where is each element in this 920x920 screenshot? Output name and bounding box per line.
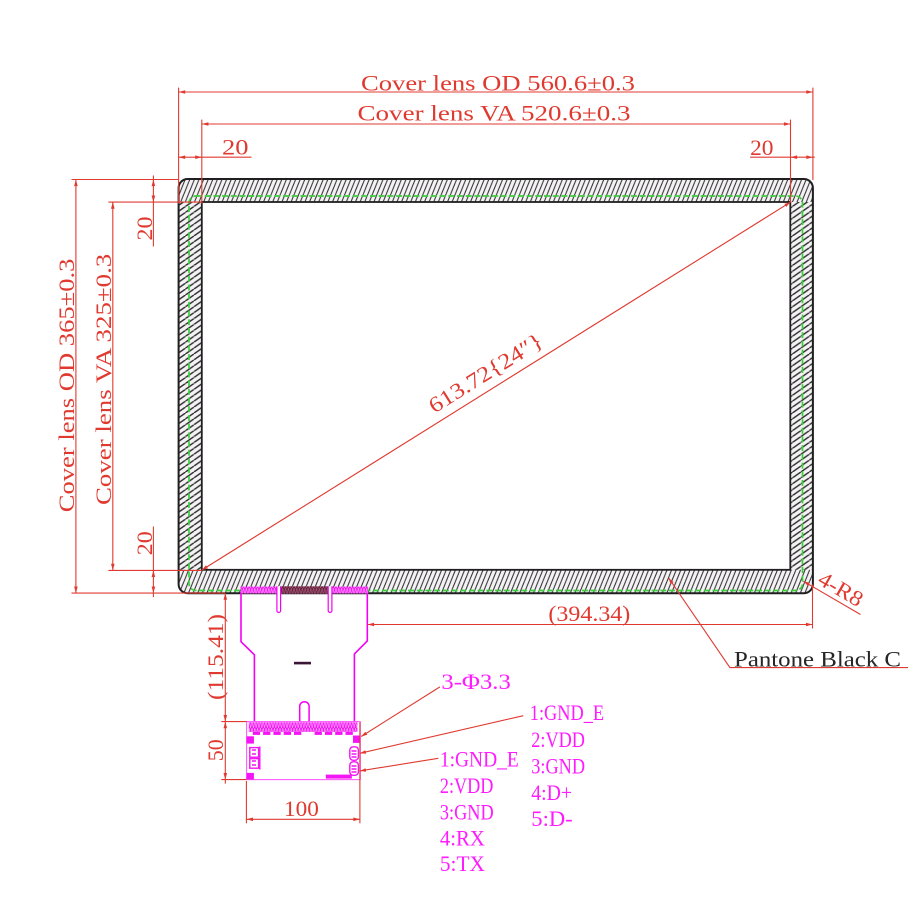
svg-text:1:GND_E: 1:GND_E (440, 747, 519, 772)
svg-text:(115.41): (115.41) (203, 614, 228, 700)
svg-text:Cover lens VA 325±0.3: Cover lens VA 325±0.3 (91, 254, 116, 505)
svg-text:Pantone Black C: Pantone Black C (734, 647, 901, 672)
svg-text:5:TX: 5:TX (440, 851, 485, 876)
svg-text:20: 20 (132, 217, 157, 241)
svg-text:3:GND: 3:GND (440, 799, 494, 824)
svg-text:5:D-: 5:D- (531, 806, 572, 831)
svg-text:Cover lens VA 520.6±0.3: Cover lens VA 520.6±0.3 (358, 101, 631, 126)
svg-text:Cover lens OD 365±0.3: Cover lens OD 365±0.3 (54, 259, 79, 513)
svg-text:2:VDD: 2:VDD (440, 773, 494, 798)
svg-text:1:GND_E: 1:GND_E (530, 700, 604, 725)
svg-text:20: 20 (132, 531, 157, 555)
svg-text:20: 20 (222, 135, 249, 160)
svg-text:50: 50 (203, 739, 228, 761)
svg-text:4:D+: 4:D+ (531, 780, 572, 805)
svg-text:2:VDD: 2:VDD (531, 727, 585, 752)
svg-text:100: 100 (284, 796, 319, 821)
svg-text:20: 20 (750, 135, 773, 160)
svg-text:Cover lens OD 560.6±0.3: Cover lens OD 560.6±0.3 (361, 71, 635, 96)
svg-text:4:RX: 4:RX (440, 826, 485, 851)
svg-text:(394.34): (394.34) (548, 601, 630, 626)
svg-text:3-Φ3.3: 3-Φ3.3 (441, 669, 510, 694)
svg-text:3:GND: 3:GND (531, 754, 585, 779)
